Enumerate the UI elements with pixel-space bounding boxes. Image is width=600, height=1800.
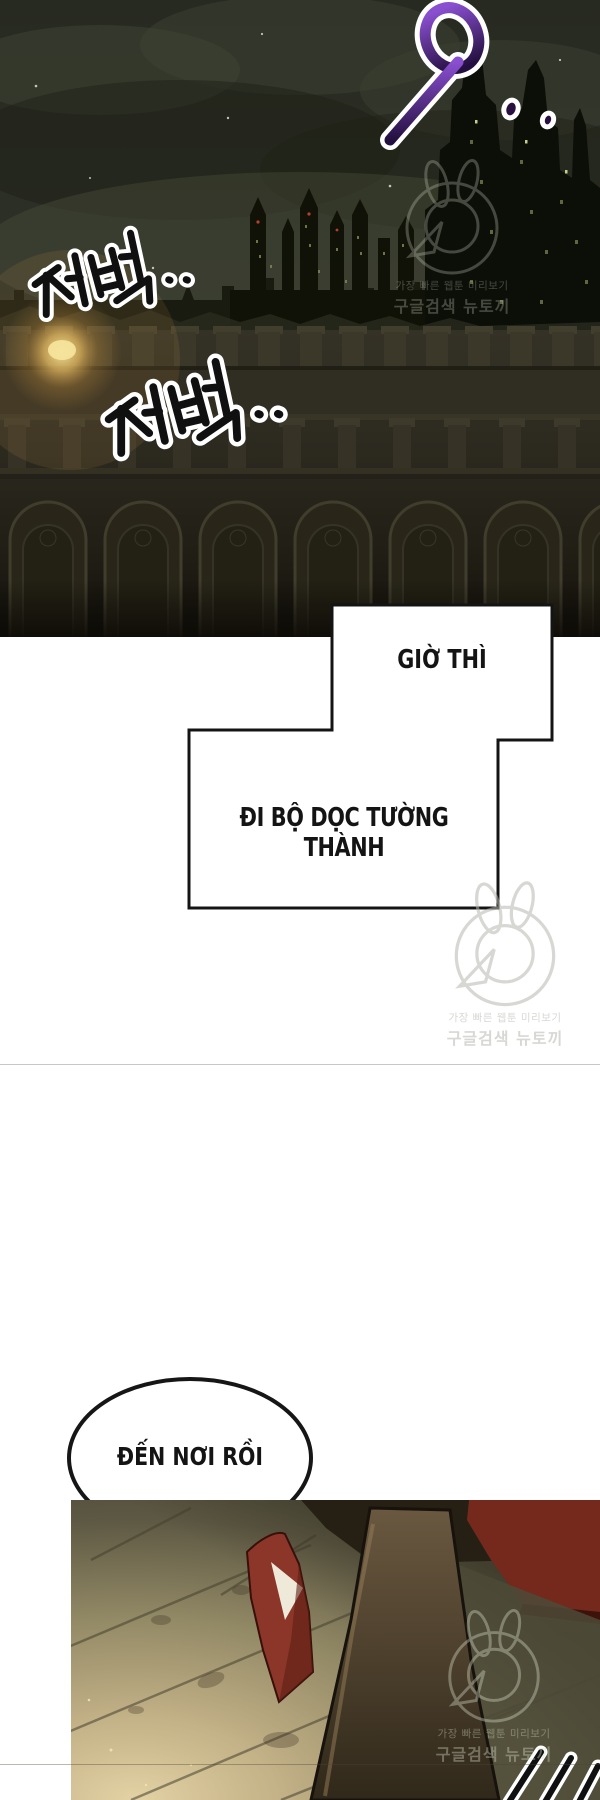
panel-street-scene xyxy=(71,1500,600,1800)
webtoon-page: 가장 빠른 웹툰 미리보기 구글검색 뉴토끼 저벅.. 저벅.. 9 GIỜ T… xyxy=(0,0,600,1800)
city-night-art xyxy=(0,0,600,637)
watermark-line-1: 가장 빠른 웹툰 미리보기 xyxy=(405,1010,600,1025)
panel-city-night: 가장 빠른 웹툰 미리보기 구글검색 뉴토끼 저벅.. 저벅.. 9 xyxy=(0,0,600,637)
speech-text-arrival: ĐẾN NƠI RỒI xyxy=(92,1442,289,1471)
page-gap-line xyxy=(0,1764,600,1765)
watermark-line-2: 구글검색 뉴토끼 xyxy=(405,1025,600,1049)
section-divider xyxy=(0,1064,600,1065)
caption-walk-along: ĐI BỘ DỌC TƯỜNG THÀNH xyxy=(221,803,467,863)
street-art xyxy=(71,1500,600,1800)
caption-now-then: GIỜ THÌ xyxy=(354,646,530,674)
